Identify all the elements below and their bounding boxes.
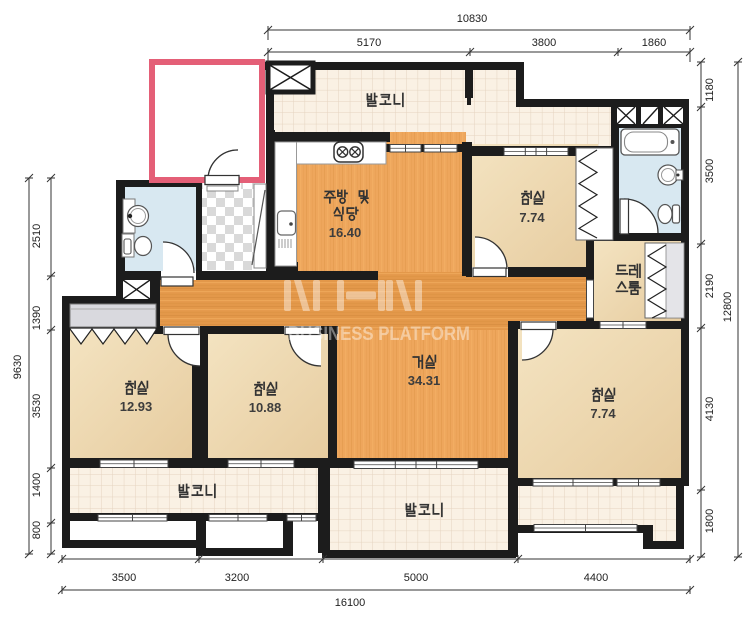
- svg-text:1800: 1800: [704, 509, 716, 533]
- svg-text:1390: 1390: [31, 306, 43, 330]
- svg-text:16100: 16100: [335, 597, 366, 609]
- svg-text:3530: 3530: [31, 394, 43, 418]
- svg-text:4400: 4400: [584, 572, 608, 584]
- svg-text:BUSINESS PLATFORM: BUSINESS PLATFORM: [288, 324, 470, 345]
- svg-text:10.88: 10.88: [249, 400, 282, 415]
- svg-text:16.40: 16.40: [329, 225, 362, 240]
- svg-text:3800: 3800: [532, 37, 556, 49]
- svg-text:3500: 3500: [112, 572, 136, 584]
- svg-text:5000: 5000: [404, 572, 428, 584]
- svg-text:1180: 1180: [704, 78, 716, 102]
- svg-text:4130: 4130: [704, 397, 716, 421]
- svg-text:3200: 3200: [225, 572, 249, 584]
- svg-text:34.31: 34.31: [408, 373, 441, 388]
- svg-text:5170: 5170: [357, 37, 381, 49]
- svg-text:3500: 3500: [704, 159, 716, 183]
- svg-text:12800: 12800: [722, 292, 734, 323]
- svg-text:800: 800: [31, 521, 43, 539]
- svg-text:12.93: 12.93: [120, 399, 153, 414]
- svg-text:9630: 9630: [12, 355, 24, 379]
- svg-text:10830: 10830: [457, 13, 488, 25]
- svg-text:1400: 1400: [31, 473, 43, 497]
- svg-text:2510: 2510: [31, 224, 43, 248]
- svg-text:1860: 1860: [642, 37, 666, 49]
- svg-text:2190: 2190: [704, 274, 716, 298]
- svg-text:7.74: 7.74: [519, 210, 545, 225]
- svg-text:7.74: 7.74: [590, 406, 616, 421]
